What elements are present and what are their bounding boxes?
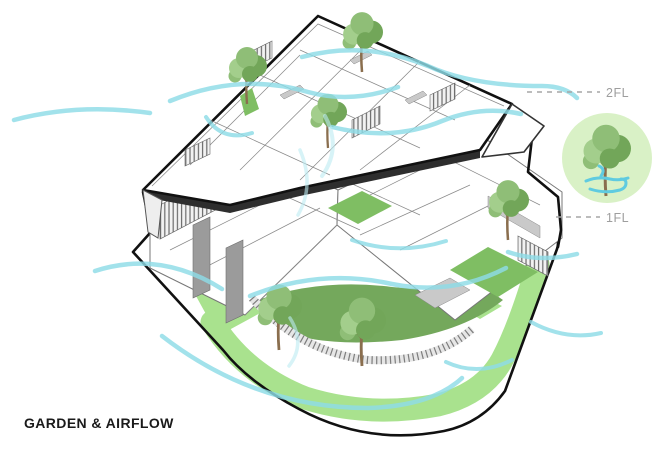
airflow-line [531,322,601,335]
airflow-line [14,109,150,120]
diagram-title: GARDEN & AIRFLOW [24,415,174,431]
floor-label-1fl-text: 1FL [606,211,629,225]
legend-symbol [562,113,652,203]
floor-label-1fl: 1FL [556,211,629,225]
garden-airflow-diagram: 2FL 1FL GARDEN & AIRFLOW [0,0,658,457]
floor-label-2fl-text: 2FL [606,86,629,100]
